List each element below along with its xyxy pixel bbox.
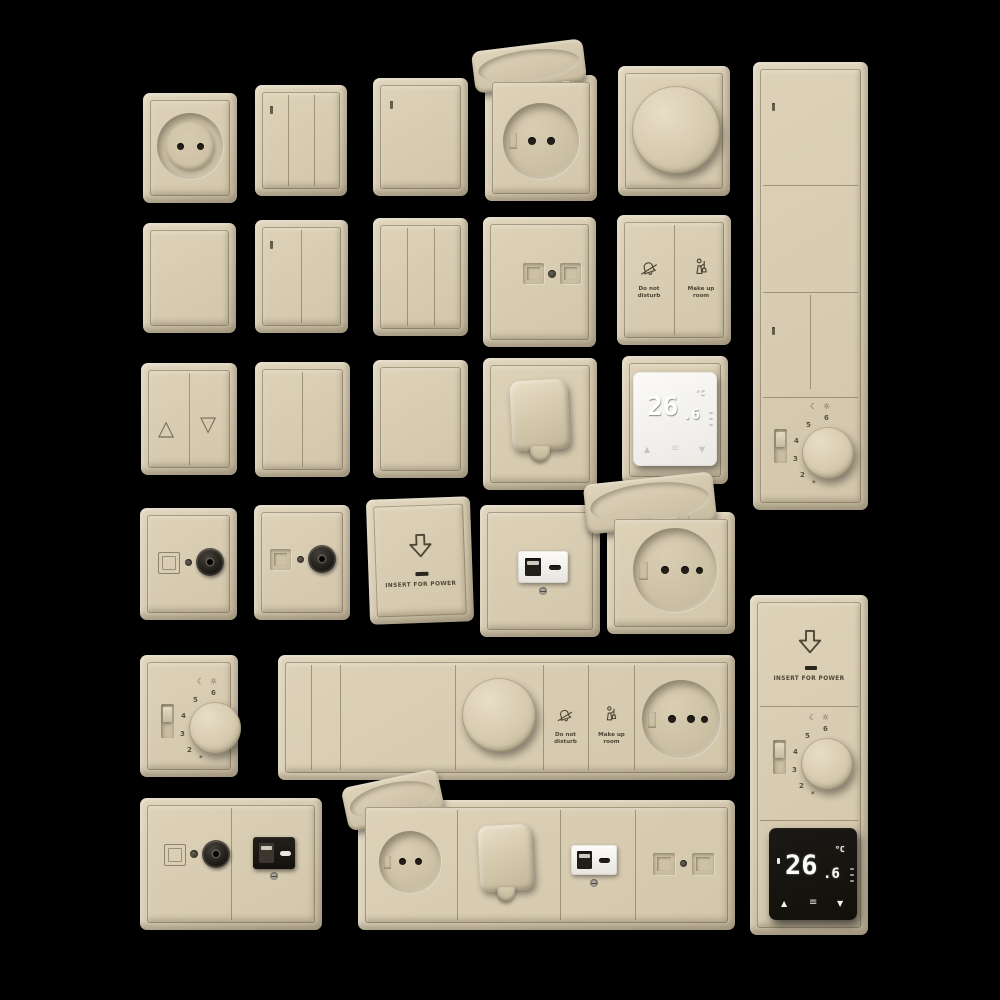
divider bbox=[407, 228, 408, 326]
status-led bbox=[548, 270, 556, 278]
blinds-down-icon: ▽ bbox=[200, 414, 216, 435]
frost-symbol: * bbox=[812, 479, 816, 487]
switch-3gang-plate bbox=[255, 85, 347, 196]
data-jack bbox=[653, 853, 675, 875]
vent-mark bbox=[709, 424, 713, 426]
temp-down-button: ▼ bbox=[699, 446, 705, 454]
dial-number-5: 5 bbox=[806, 421, 811, 429]
earth-clip bbox=[648, 712, 656, 728]
dial-number-4: 4 bbox=[181, 712, 186, 720]
dial-number-6: 6 bbox=[824, 414, 829, 422]
earth-clip bbox=[509, 133, 517, 149]
vent-mark bbox=[709, 412, 713, 414]
thermostat-toggle bbox=[774, 429, 787, 463]
divider bbox=[302, 372, 303, 467]
horizontal-combo-panel-2 bbox=[358, 800, 735, 930]
product-render-canvas: ☾ ☼ 6 5 4 3 2 * bbox=[0, 0, 1000, 1000]
data-jack bbox=[692, 853, 714, 875]
socket-inner bbox=[166, 122, 214, 170]
usb-a-tongue bbox=[579, 854, 590, 858]
jack-inner bbox=[168, 848, 182, 862]
dial-number-5: 5 bbox=[805, 732, 810, 740]
thermostat-toggle bbox=[773, 740, 786, 774]
thermostat-toggle bbox=[161, 704, 174, 738]
divider bbox=[311, 665, 312, 770]
dnd-label-line1: Do not bbox=[544, 732, 587, 739]
toggle-lever bbox=[163, 707, 172, 722]
coax-pin bbox=[319, 556, 325, 562]
toggle-lever bbox=[776, 432, 785, 447]
dnd-label: Do not disturb bbox=[544, 732, 587, 746]
usb-a-tongue bbox=[527, 561, 539, 565]
data-socket-plate bbox=[483, 217, 596, 347]
digital-thermostat-white-plate: 26 .6 °C ▲ ≡ ▼ bbox=[622, 356, 728, 484]
divider bbox=[588, 665, 589, 770]
data-jack bbox=[270, 549, 291, 570]
pin-hole bbox=[661, 566, 669, 574]
divider bbox=[543, 665, 544, 770]
dial-number-2: 2 bbox=[800, 471, 805, 479]
switch-blank-plate bbox=[373, 360, 468, 478]
mur-label: Make up room bbox=[680, 286, 722, 300]
moon-icon: ☾ bbox=[197, 678, 204, 686]
pin-hole bbox=[528, 137, 536, 145]
moon-icon: ☾ bbox=[809, 714, 816, 722]
switch-2gang-plate bbox=[255, 220, 348, 333]
pin-hole bbox=[197, 143, 204, 150]
divider bbox=[674, 225, 675, 335]
pin-hole bbox=[547, 137, 555, 145]
dial-number-4: 4 bbox=[793, 748, 798, 756]
no-disturb-bell-icon bbox=[638, 258, 660, 280]
horizontal-combo-panel: Do not disturb Make up room bbox=[278, 655, 735, 780]
plate-face bbox=[262, 92, 340, 189]
screw bbox=[590, 879, 598, 887]
toggle-lever bbox=[775, 743, 784, 758]
usb-module-white bbox=[518, 551, 568, 583]
insert-card-arrow-icon bbox=[403, 529, 438, 564]
status-led bbox=[680, 860, 687, 867]
jack-shutter bbox=[696, 857, 710, 871]
cable-outlet-cover bbox=[509, 379, 571, 452]
tv-usb-double-plate bbox=[140, 798, 322, 930]
schuko-recess bbox=[503, 103, 579, 179]
temperature-unit: °C bbox=[835, 846, 845, 854]
moon-icon: ☾ bbox=[810, 403, 817, 411]
data-jack bbox=[523, 263, 544, 284]
screw bbox=[539, 587, 547, 595]
usb-c-port bbox=[280, 851, 291, 856]
dnd-label-line2: disturb bbox=[628, 293, 670, 300]
panel-face: INSERT FOR POWER ☾ ☼ 6 5 4 3 2 * 26 .6 °… bbox=[757, 602, 861, 928]
dnd-label-line1: Do not bbox=[628, 286, 670, 293]
schuko-recess bbox=[642, 680, 720, 758]
vertical-combo-panel-2: INSERT FOR POWER ☾ ☼ 6 5 4 3 2 * 26 .6 °… bbox=[750, 595, 868, 935]
schuko-recess bbox=[379, 831, 441, 893]
panel-face: Do not disturb Make up room bbox=[285, 662, 728, 773]
jack-shutter bbox=[564, 267, 577, 280]
dimmer-plate bbox=[618, 66, 730, 196]
frost-symbol: * bbox=[811, 790, 815, 798]
coax-connector bbox=[202, 840, 230, 868]
jack-shutter bbox=[657, 857, 671, 871]
usb-a-port bbox=[259, 843, 274, 863]
indicator-window bbox=[270, 241, 273, 249]
divider bbox=[634, 665, 635, 770]
heating-indicator bbox=[777, 858, 780, 864]
pin-hole bbox=[668, 715, 676, 723]
vent-mark bbox=[850, 874, 854, 876]
usb-a-port bbox=[525, 558, 541, 576]
dial-number-6: 6 bbox=[211, 689, 216, 697]
schuko-recess bbox=[633, 528, 717, 612]
dnd-label-line2: disturb bbox=[544, 739, 587, 746]
round-socket-recess bbox=[157, 113, 223, 179]
thermostat-display-white: 26 .6 °C ▲ ≡ ▼ bbox=[633, 372, 717, 466]
switch-2gang-plate bbox=[255, 362, 350, 477]
usb-charger-plate bbox=[480, 505, 600, 637]
dial-number-2: 2 bbox=[187, 746, 192, 754]
dial-number-3: 3 bbox=[180, 730, 185, 738]
plate-face: ☾ ☼ 6 5 4 3 2 * bbox=[147, 662, 231, 770]
earth-clip bbox=[639, 562, 648, 580]
panel-face bbox=[365, 807, 728, 923]
plate-face bbox=[380, 85, 461, 189]
coax-connector bbox=[308, 545, 336, 573]
switch-blank-plate bbox=[143, 223, 236, 333]
divider bbox=[314, 95, 315, 186]
dimmer-knob bbox=[462, 678, 536, 752]
coax-connector bbox=[196, 548, 224, 576]
usb-module-black bbox=[253, 837, 295, 869]
make-up-room-maid-icon bbox=[601, 704, 621, 724]
usb-a-tongue bbox=[261, 846, 272, 850]
temperature-unit: °C bbox=[695, 389, 705, 397]
temperature-decimal: .6 bbox=[683, 408, 700, 422]
divider bbox=[455, 665, 456, 770]
divider bbox=[457, 810, 458, 920]
socket-with-lid-plate bbox=[485, 75, 597, 201]
dial-number-2: 2 bbox=[799, 782, 804, 790]
rotary-thermostat: ☾ ☼ 6 5 4 3 2 * bbox=[760, 397, 859, 510]
no-disturb-bell-icon bbox=[555, 706, 575, 726]
dial-number-6: 6 bbox=[823, 725, 828, 733]
plate-face bbox=[380, 225, 461, 329]
card-slot bbox=[415, 572, 428, 576]
mur-label-line2: room bbox=[680, 293, 722, 300]
cable-exit-loop bbox=[497, 887, 515, 902]
screw bbox=[270, 872, 278, 880]
status-led bbox=[190, 850, 198, 858]
pin-hole bbox=[681, 566, 689, 574]
dial-number-3: 3 bbox=[793, 455, 798, 463]
sun-icon: ☼ bbox=[210, 678, 217, 686]
make-up-room-maid-icon bbox=[690, 256, 712, 278]
plate-face bbox=[262, 369, 343, 470]
pin-hole bbox=[415, 858, 422, 865]
temp-up-button: ▲ bbox=[781, 900, 787, 908]
pin-hole bbox=[399, 858, 406, 865]
divider bbox=[760, 820, 858, 821]
pin-hole bbox=[696, 567, 703, 574]
dnd-mur-switch-plate: Do not disturb Make up room bbox=[617, 215, 731, 345]
data-jack-outline bbox=[164, 844, 186, 866]
plate-face: Do not disturb Make up room bbox=[624, 222, 724, 338]
pin-hole bbox=[177, 143, 184, 150]
dnd-label: Do not disturb bbox=[628, 286, 670, 300]
mur-label-line1: Make up bbox=[680, 286, 722, 293]
menu-button: ≡ bbox=[671, 444, 679, 454]
insert-for-power-label: INSERT FOR POWER bbox=[757, 676, 861, 682]
temperature-value: 26 bbox=[785, 852, 818, 879]
round-socket-plate bbox=[143, 93, 237, 203]
divider bbox=[810, 295, 811, 389]
usb-module-white bbox=[571, 845, 617, 875]
thermostat-display-black: 26 .6 °C ▲ ≡ ▼ bbox=[769, 828, 857, 920]
indicator-window bbox=[390, 101, 393, 109]
indicator-window bbox=[772, 103, 775, 111]
vent-mark bbox=[850, 880, 854, 882]
status-led bbox=[185, 559, 192, 566]
data-jack-outline bbox=[158, 552, 180, 574]
pin-hole bbox=[701, 716, 708, 723]
divider bbox=[763, 185, 858, 186]
temperature-value: 26 bbox=[647, 394, 678, 420]
plate-face: △ ▽ bbox=[148, 370, 230, 468]
vent-mark bbox=[850, 868, 854, 870]
dial-number-3: 3 bbox=[792, 766, 797, 774]
sun-icon: ☼ bbox=[822, 714, 829, 722]
plate-face bbox=[380, 367, 461, 471]
divider bbox=[189, 373, 190, 465]
card-slot bbox=[805, 666, 817, 670]
divider bbox=[635, 810, 636, 920]
thermostat-knob bbox=[802, 427, 854, 479]
indicator-window bbox=[270, 106, 273, 114]
blinds-switch-plate: △ ▽ bbox=[141, 363, 237, 475]
insert-card-arrow-icon bbox=[793, 626, 827, 660]
mur-label-line2: room bbox=[590, 739, 633, 746]
key-card-holder-plate: INSERT FOR POWER bbox=[366, 496, 474, 625]
usb-a-port bbox=[577, 851, 592, 869]
frost-symbol: * bbox=[199, 754, 203, 762]
dial-number-4: 4 bbox=[794, 437, 799, 445]
thermostat-knob bbox=[189, 702, 241, 754]
vertical-combo-panel: ☾ ☼ 6 5 4 3 2 * bbox=[753, 62, 868, 510]
plate-face bbox=[262, 227, 341, 326]
divider bbox=[340, 665, 341, 770]
temperature-decimal: .6 bbox=[823, 867, 840, 881]
switch-3gang-plate bbox=[373, 218, 468, 336]
blinds-up-icon: △ bbox=[158, 418, 174, 439]
divider bbox=[288, 95, 289, 186]
plate-face bbox=[150, 230, 229, 326]
menu-button: ≡ bbox=[809, 898, 817, 908]
usb-c-port bbox=[549, 565, 561, 570]
pin-hole bbox=[687, 715, 695, 723]
dial-number-5: 5 bbox=[193, 696, 198, 704]
usb-c-port bbox=[599, 858, 610, 863]
data-jack bbox=[560, 263, 581, 284]
rotary-thermostat: ☾ ☼ 6 5 4 3 2 * bbox=[759, 706, 859, 820]
tv-socket-plate bbox=[140, 508, 237, 620]
divider bbox=[560, 810, 561, 920]
status-led bbox=[297, 556, 304, 563]
temp-up-button: ▲ bbox=[644, 446, 650, 454]
tv-data-socket-plate bbox=[254, 505, 350, 620]
divider bbox=[434, 228, 435, 326]
panel-face: ☾ ☼ 6 5 4 3 2 * bbox=[760, 69, 861, 503]
jack-shutter bbox=[274, 553, 287, 566]
vent-mark bbox=[709, 418, 713, 420]
sun-icon: ☼ bbox=[823, 403, 830, 411]
coax-pin bbox=[207, 559, 213, 565]
temp-down-button: ▼ bbox=[837, 900, 843, 908]
earth-clip bbox=[384, 856, 391, 869]
schuko-lid-socket-plate bbox=[607, 512, 735, 634]
divider bbox=[301, 230, 302, 323]
thermostat-knob bbox=[801, 738, 853, 790]
mur-label: Make up room bbox=[590, 732, 633, 746]
mur-label-line1: Make up bbox=[590, 732, 633, 739]
cable-outlet-cover bbox=[477, 824, 534, 893]
coax-pin bbox=[213, 851, 219, 857]
switch-1gang-plate bbox=[373, 78, 468, 196]
rotary-thermostat-plate: ☾ ☼ 6 5 4 3 2 * bbox=[140, 655, 238, 777]
indicator-window bbox=[772, 327, 775, 335]
jack-shutter bbox=[527, 267, 540, 280]
cable-outlet-plate bbox=[483, 358, 597, 490]
divider bbox=[763, 292, 858, 293]
divider bbox=[231, 808, 232, 920]
dimmer-knob bbox=[632, 86, 720, 174]
jack-inner bbox=[162, 556, 176, 570]
